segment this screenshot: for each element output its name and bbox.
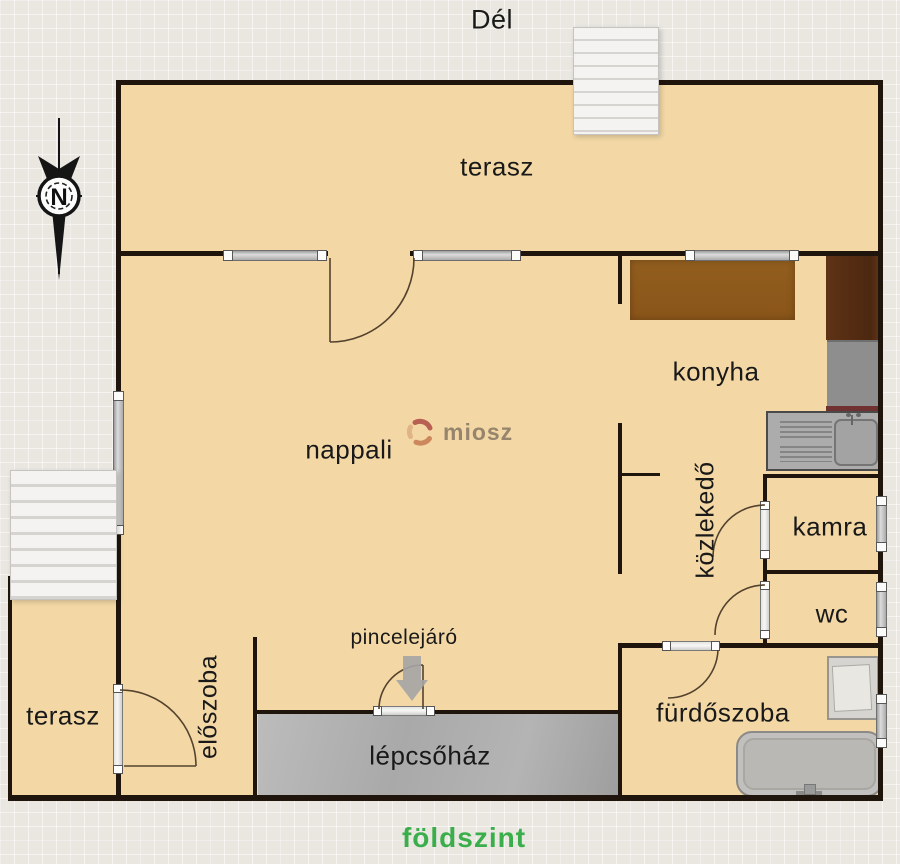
watermark: miosz <box>403 415 513 449</box>
room-label-wc: wc <box>816 599 849 630</box>
sink-faucet <box>851 415 853 425</box>
room-label-kozlekedo: közlekedő <box>692 461 721 578</box>
wall-terrace <box>790 251 883 256</box>
bathtub-faucet-head <box>804 784 816 795</box>
wall-right <box>878 628 883 701</box>
room-label-kamra: kamra <box>793 512 868 543</box>
watermark-logo-icon <box>403 415 437 449</box>
room-label-terasz-top: terasz <box>460 152 534 183</box>
wall-terrace-bottom-left <box>8 576 12 798</box>
room-label-konyha: konyha <box>673 357 760 388</box>
room-label-furdoszoba: fürdőszoba <box>656 698 790 729</box>
stove <box>827 340 881 408</box>
stairs-top <box>573 27 659 135</box>
watermark-text: miosz <box>443 419 513 446</box>
wall-terrace <box>512 251 692 256</box>
window <box>876 589 887 630</box>
sink-faucet-knob <box>846 413 851 417</box>
window <box>876 503 887 545</box>
kitchen-counter <box>630 260 795 320</box>
compass-icon: N <box>18 106 102 284</box>
wall-corridor-left <box>618 423 622 574</box>
room-label-nappali: nappali <box>305 435 392 466</box>
door-pantry <box>760 501 770 559</box>
window <box>230 250 320 261</box>
room-label-eloszoba: előszoba <box>195 655 224 759</box>
door-terrace-hall <box>113 684 123 774</box>
door-basement <box>373 706 435 716</box>
wall-pantry-top <box>763 474 883 478</box>
compass-north-label: N <box>50 184 67 211</box>
window <box>876 701 887 741</box>
sink-vent-lines <box>780 446 832 462</box>
washing-machine <box>827 656 879 720</box>
wall-hall-right <box>253 637 257 799</box>
wall-top <box>116 80 883 85</box>
wall-terrace <box>118 251 230 256</box>
sink-vent-lines <box>780 421 832 440</box>
wall-bottom <box>8 795 883 801</box>
terrace-bottom-floor <box>10 594 118 798</box>
wall-bathroom-top <box>618 643 662 648</box>
wall-left <box>116 80 121 398</box>
wall-pantry-wc <box>767 570 883 574</box>
room-label-lepcsohaz: lépcsőház <box>369 741 491 772</box>
bathtub <box>736 731 883 797</box>
wall-staircase-top <box>255 710 373 714</box>
wall-corridor-tick <box>622 473 660 476</box>
kitchen-cabinet <box>826 256 882 340</box>
south-label: Dél <box>471 5 513 36</box>
floor-plan: N miosz Dél terasz nappali konyha közlek… <box>0 0 900 864</box>
basement-entrance-label: pincelejáró <box>350 626 457 650</box>
wall-right <box>878 80 883 503</box>
wall-bathroom-top <box>718 643 883 648</box>
door-bathroom <box>662 641 720 651</box>
stairs-left <box>10 470 117 600</box>
washing-machine-lid <box>832 664 872 712</box>
window <box>420 250 514 261</box>
floor-name-label: földszint <box>402 822 526 854</box>
wall-stub-kitchen <box>618 251 622 304</box>
wall-staircase-top <box>433 710 618 714</box>
window <box>692 250 792 261</box>
kitchen-sink-counter <box>766 411 882 471</box>
door-wc <box>760 581 770 639</box>
sink-faucet-knob <box>856 413 861 417</box>
sink-basin <box>834 419 878 466</box>
wall-bathroom-left <box>618 643 622 800</box>
room-label-terasz-bottom: terasz <box>26 701 100 732</box>
bathtub-inner <box>743 738 876 790</box>
